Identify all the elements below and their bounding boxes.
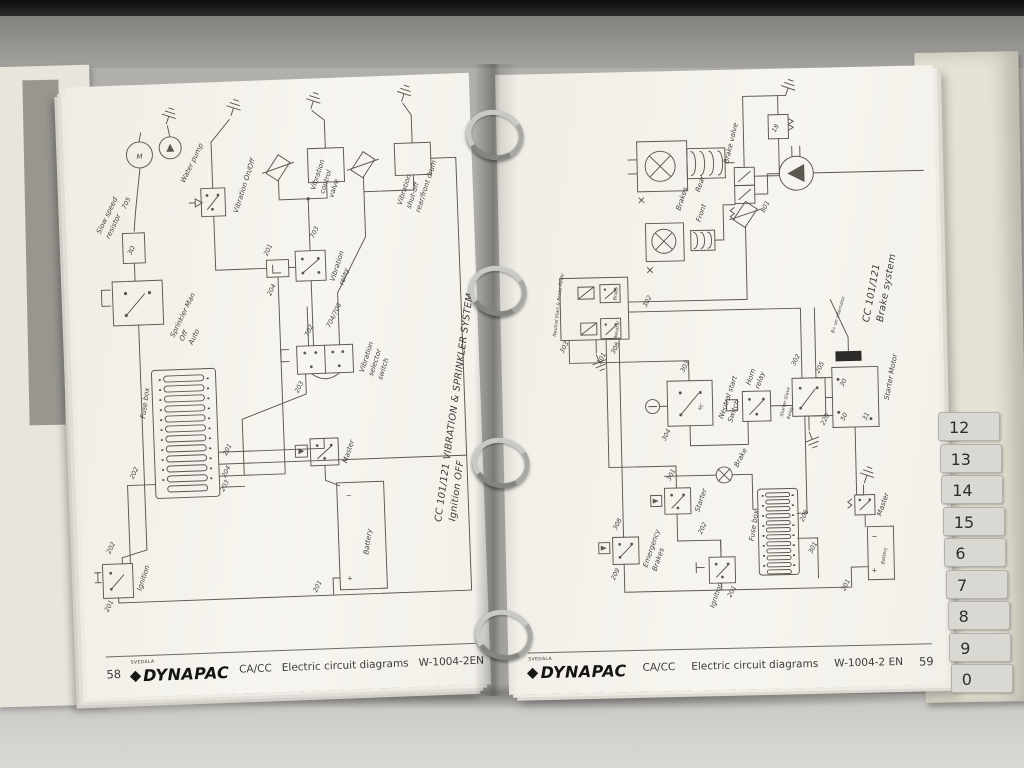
relief-valve: 18 bbox=[768, 95, 794, 139]
dynapac-logo: SVEDALA DYNAPAC bbox=[131, 658, 230, 686]
master-switch bbox=[847, 485, 875, 528]
ignition-wire-201: 201 bbox=[103, 599, 116, 613]
sprinkler-switch bbox=[101, 280, 164, 326]
index-tab-0: 0 bbox=[951, 664, 1013, 693]
fuse-wire-202: 202 bbox=[128, 466, 141, 480]
dynapac-wordmark: DYNAPAC bbox=[540, 661, 627, 682]
battery-minus: − bbox=[346, 491, 352, 499]
wire-302-b: 302 bbox=[789, 353, 802, 367]
master-label: Master bbox=[341, 438, 356, 464]
front-brake-actuator bbox=[645, 205, 736, 273]
dynapac-wordmark: DYNAPAC bbox=[143, 663, 230, 685]
ground-icon bbox=[858, 465, 876, 485]
wire-308-b: 308 bbox=[611, 517, 624, 531]
wire-302-a: 302 bbox=[641, 294, 654, 308]
front-label: Front bbox=[695, 203, 709, 223]
neutral-start-brake-relay bbox=[560, 273, 806, 538]
battery: − + Battery bbox=[850, 526, 894, 580]
water-pump-label: Water pump bbox=[179, 141, 205, 184]
ground-icon bbox=[779, 78, 797, 98]
motor-label: M bbox=[136, 153, 142, 161]
starter-motor-label: Starter Motor bbox=[883, 352, 900, 401]
left-page-number: 58 bbox=[106, 667, 121, 682]
right-schematic: Rear Brakes Front Brake valve 801 bbox=[495, 65, 946, 635]
ignition-label: Ignition bbox=[136, 564, 152, 591]
wire-705-label: 705 bbox=[120, 196, 133, 210]
rear-label: Rear bbox=[694, 174, 707, 193]
neutral-relay-label: Neutral bbox=[613, 320, 622, 338]
resistor-value: 3Ω bbox=[126, 245, 137, 257]
ignition-switch bbox=[94, 563, 133, 598]
nc-label: NC bbox=[697, 402, 706, 411]
index-tab-8: 8 bbox=[948, 601, 1010, 630]
index-tab-13: 13 bbox=[940, 444, 1002, 473]
wire-201-bottom bbox=[119, 585, 472, 603]
wire-204-label: 204 bbox=[265, 283, 278, 297]
terminal-50: 50 bbox=[839, 411, 850, 422]
brake-relay-label: Brake bbox=[612, 286, 620, 300]
terminal-31: 31 bbox=[861, 411, 872, 422]
ground-icon bbox=[159, 83, 415, 126]
wire-sprinkler-down bbox=[114, 325, 148, 564]
index-tab-15: 15 bbox=[943, 507, 1005, 536]
ignition-wire-202: 202 bbox=[105, 541, 118, 555]
brake-lamp bbox=[664, 466, 758, 511]
wire-209-label: 209 bbox=[609, 567, 622, 581]
doc-ref: W-1004-2 EN bbox=[834, 656, 903, 670]
model-code: CA/CC bbox=[642, 661, 675, 674]
wire-203-label: 203 bbox=[293, 380, 306, 394]
index-tab-7: 7 bbox=[946, 570, 1008, 599]
nsb-relay-label: Neutral Start & Brake Relay bbox=[552, 273, 565, 337]
left-schematic: M Water pump 705 3Ω Slow speed resistor … bbox=[65, 73, 489, 642]
wire-208-label: 208 bbox=[798, 509, 811, 523]
svedala-text: SVEDALA bbox=[131, 660, 155, 666]
connector-201 bbox=[211, 260, 296, 477]
sprinkler-label-3: Auto bbox=[187, 328, 202, 347]
right-page: Rear Brakes Front Brake valve 801 bbox=[495, 65, 947, 695]
brake-lamp-label: Brake bbox=[733, 447, 749, 469]
wire-220-label: 220 bbox=[819, 412, 832, 426]
fuse-wire-203: 203 bbox=[218, 478, 231, 492]
binder-spine-strip bbox=[22, 80, 65, 426]
doc-title: Electric circuit diagrams bbox=[691, 658, 818, 673]
wire-304-label: 304 bbox=[660, 428, 673, 442]
index-tab-6: 6 bbox=[944, 538, 1006, 567]
battery-wire-201: 201 bbox=[311, 579, 324, 593]
right-page-number: 59 bbox=[919, 654, 934, 668]
dynapac-logo: SVEDALA DYNAPAC bbox=[528, 656, 627, 682]
battery-plus: + bbox=[871, 567, 877, 575]
emergency-brakes-switch bbox=[599, 532, 852, 593]
relief-value: 18 bbox=[770, 123, 781, 134]
battery-minus: − bbox=[872, 532, 878, 540]
photo-background-gray bbox=[0, 16, 1024, 68]
master-label: Master bbox=[875, 491, 891, 517]
brake-valve-label: Brake valve bbox=[722, 122, 740, 164]
wire-705 bbox=[132, 168, 142, 231]
terminal-30: 30 bbox=[838, 377, 849, 388]
index-tab-12: 12 bbox=[938, 412, 1000, 441]
right-page-subtitle: Brake system bbox=[875, 253, 899, 323]
hydraulic-pump bbox=[779, 143, 924, 190]
brakes-label: Brakes bbox=[674, 186, 689, 212]
water-pump-motor: M bbox=[125, 125, 181, 168]
index-tab-9: 9 bbox=[949, 633, 1011, 662]
wire-202-label: 202 bbox=[696, 521, 709, 535]
master-switch bbox=[295, 438, 340, 488]
model-code: CA/CC bbox=[239, 662, 272, 675]
slow-speed-resistor: 3Ω bbox=[122, 233, 146, 282]
fuse-wire-204: 204 bbox=[220, 464, 233, 478]
starter-label: Starter bbox=[693, 487, 709, 514]
svedala-diamond-icon bbox=[527, 667, 538, 678]
battery-plus: + bbox=[347, 574, 353, 582]
battery-label: Battery bbox=[880, 547, 889, 565]
index-tab-14: 14 bbox=[941, 475, 1003, 504]
doc-title: Electric circuit diagrams bbox=[282, 657, 409, 674]
battery: − + Battery bbox=[330, 481, 388, 595]
wire-703-label: 703 bbox=[308, 225, 321, 239]
fuse-wire-201: 201 bbox=[221, 442, 234, 456]
ignition-label: Ignition bbox=[708, 581, 724, 608]
photo-background-top bbox=[0, 0, 1024, 16]
slave-relay-label-2: Relay bbox=[786, 406, 795, 420]
left-footer: 58 SVEDALA DYNAPAC CA/CC Electric circui… bbox=[106, 643, 477, 687]
vibration-onoff-label: Vibration On/Off bbox=[232, 157, 257, 214]
fuse-box bbox=[719, 488, 818, 580]
wire-704-706-label: 704/706 bbox=[325, 302, 344, 329]
left-page: M Water pump 705 3Ω Slow speed resistor … bbox=[65, 73, 491, 699]
battery-label: Battery bbox=[362, 527, 374, 555]
wire-801-label: 801 bbox=[759, 199, 772, 213]
wire-201-label: 201 bbox=[262, 243, 275, 257]
wire-201-b: 201 bbox=[839, 578, 852, 592]
b-plus-label: B+ on alternator bbox=[830, 294, 847, 334]
wire-201-a: 201 bbox=[726, 584, 739, 598]
vibration-onoff-switch bbox=[186, 118, 266, 271]
svedala-text: SVEDALA bbox=[528, 657, 552, 663]
right-footer: SVEDALA DYNAPAC CA/CC Electric circuit d… bbox=[528, 643, 933, 682]
svedala-diamond-icon bbox=[130, 670, 141, 681]
